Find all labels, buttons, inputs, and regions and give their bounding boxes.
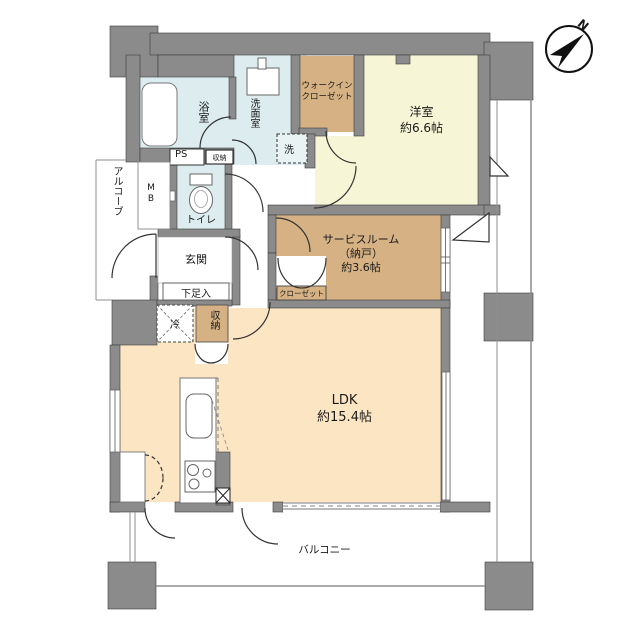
closet-label: クローゼット	[277, 288, 326, 299]
ldk-size: 約15.4帖	[287, 409, 402, 426]
pipe-space-label: PS	[175, 149, 187, 160]
wall-bottom-3	[273, 502, 283, 512]
washbasin-faucet	[258, 58, 266, 69]
toilet-tank	[190, 174, 212, 185]
wall-service-top	[268, 205, 490, 215]
wall-corridor-stub	[484, 205, 500, 215]
service-room-name: サービスルーム	[291, 233, 431, 247]
pillar-top-right	[484, 42, 533, 100]
service-room-subname: （納戸）	[291, 247, 431, 261]
walk-in-closet-label: ウォークイン クローゼット	[297, 81, 357, 102]
compass	[546, 26, 592, 72]
ldk-label: LDK 約15.4帖	[287, 392, 402, 426]
storage-door-area	[195, 342, 228, 364]
ldk-name: LDK	[287, 392, 402, 409]
kitchen-sink	[186, 394, 212, 438]
wall-block-left	[112, 300, 157, 345]
western-room-name: 洋室	[365, 104, 478, 120]
wall-left-outer	[126, 55, 140, 162]
wic-label-line2: クローゼット	[297, 92, 357, 103]
wall-bath-washroom	[229, 77, 236, 119]
refrigerator-label: 冷	[161, 316, 189, 331]
bathtub	[142, 83, 177, 146]
ldk-side-storage	[120, 452, 145, 502]
wall-bottom-4	[440, 502, 490, 512]
wall-service-left-lower	[268, 253, 276, 300]
washbasin	[247, 68, 279, 95]
pillar-bottom-right	[485, 562, 533, 610]
service-room-label: サービスルーム （納戸） 約3.6帖	[291, 233, 431, 275]
wall-western-right	[478, 55, 490, 215]
storage-ldk-label: 収納	[206, 310, 221, 330]
corridor-window-flap	[490, 157, 508, 176]
balcony-door-kitchen-arc	[242, 508, 278, 544]
bathroom-label: 浴室	[195, 101, 211, 123]
wall-service-left-upper	[268, 215, 276, 253]
wall-entrance-right	[232, 235, 240, 305]
pillar-mid-right	[484, 293, 533, 341]
balcony-label: バルコニー	[272, 542, 377, 557]
wall-entrance-top	[158, 229, 240, 237]
wall-service-bottom	[268, 300, 450, 308]
meter-box-label: MB	[146, 183, 156, 205]
western-room-label: 洋室 約6.6帖	[365, 104, 478, 136]
wall-top	[150, 33, 490, 55]
floorplan-canvas: N 浴室 洗面室 洗 ウォークイン クローゼット 洋室 約6.6帖 PS 収納 …	[0, 0, 640, 640]
alcove-label: アルコーブ	[109, 166, 124, 216]
washroom-label: 洗面室	[246, 98, 261, 128]
wic-label-line1: ウォークイン	[297, 81, 357, 92]
pillar-bottom-left	[108, 562, 156, 609]
western-room-size: 約6.6帖	[365, 120, 478, 136]
toilet-label: トイレ	[177, 211, 225, 226]
wall-stub-top	[396, 55, 410, 64]
washing-machine-label: 洗	[284, 141, 294, 156]
entrance-label: 玄関	[168, 251, 224, 267]
wall-bottom-1	[110, 502, 145, 512]
shoe-cabinet-label: 下足入	[164, 285, 228, 300]
storage-small-label: 収納	[206, 153, 233, 163]
service-room-size: 約3.6帖	[291, 261, 431, 275]
balcony-door-left-arc	[145, 508, 175, 538]
wall-bath-top	[158, 55, 234, 77]
